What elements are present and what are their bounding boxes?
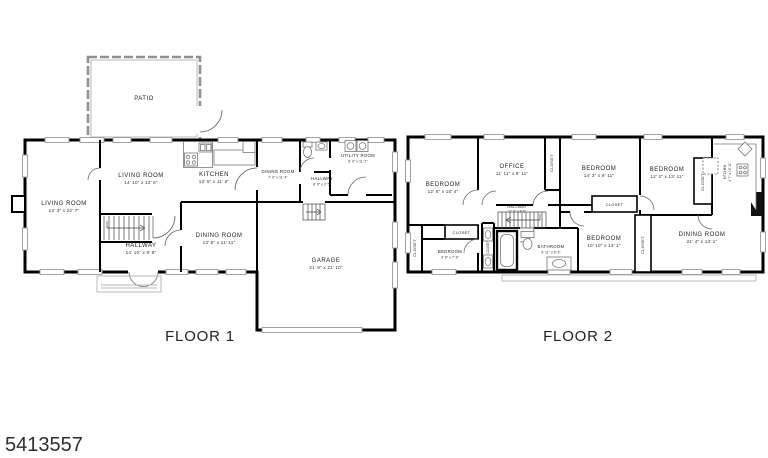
room-dims-office: 11' 11" x 9' 11" <box>496 171 529 176</box>
closet-label-mid: CLOSET <box>453 230 471 235</box>
room-label-hallway-a: HALLWAY <box>125 243 156 249</box>
room-label-garage: GARAGE <box>312 258 341 264</box>
front-door-gap <box>128 268 158 276</box>
vanity-sink-icon <box>547 257 571 270</box>
floor2-deck-line <box>502 275 756 281</box>
stove-icon <box>185 153 198 166</box>
room-dims-garage: 21' 9" x 21' 10" <box>309 265 343 270</box>
closet-label-top: CLOSET <box>549 154 554 172</box>
closet-label-left: CLOSET <box>412 239 417 257</box>
dishwasher-icon <box>703 158 718 174</box>
room-dims-living-room-b: 14' 10" x 13' 6" <box>124 180 158 185</box>
room-dims-bedroom-a: 12' 6" x 15' 4" <box>428 189 459 194</box>
room-dims-kitchen: 13' 5" x 11' 6" <box>199 179 230 184</box>
staircase-down-icon <box>498 212 546 228</box>
floor1-plan: PATIO LIVING ROOM 13' 3" x 22' 7" LIVING… <box>12 57 398 333</box>
bathtub-icon <box>497 231 517 270</box>
stove2-icon <box>737 164 748 176</box>
room-dims-bathroom2: 9' 11" x 6' 3" <box>541 251 561 255</box>
staircase-up-icon <box>104 216 149 240</box>
room-dims-utility-room: 8' 9" x 11' 2" <box>348 160 368 164</box>
room-label-bedroom-a: BEDROOM <box>426 182 461 188</box>
refrigerator-icon <box>243 142 255 153</box>
room-dims-dining-room-a: 13' 5" x 11' 11" <box>203 240 236 245</box>
room-label-living-room-a: LIVING ROOM <box>41 201 87 207</box>
room-label-bathroom2: BATHROOM <box>538 244 565 249</box>
room-label-living-room-b: LIVING ROOM <box>118 173 164 179</box>
room-label-hallway2: HALLWAY <box>507 205 527 209</box>
room-dims-bedroom-c: 12' 2" x 13' 11" <box>650 174 683 179</box>
room-dims-living-room-a: 13' 3" x 22' 7" <box>49 208 80 213</box>
closet-label-linen: CLOSET <box>486 240 490 253</box>
patio-door-arc <box>200 110 222 132</box>
room-dims-kitchen2: 4' 7" x 10' 11" <box>728 161 732 181</box>
patio-structure <box>88 57 222 140</box>
room-label-bedroom-b: BEDROOM <box>582 166 617 172</box>
room-dims-bedroom-d: 9' 6" x 7' 8" <box>441 256 459 260</box>
closet-label-bedroom-c: CLOSET <box>700 173 705 191</box>
patio-door-gap <box>196 106 203 134</box>
room-dims-dining-room2: 21' 4" x 13' 1" <box>687 239 718 244</box>
room-label-kitchen: KITCHEN <box>199 172 229 178</box>
chimney <box>12 196 25 212</box>
room-dims-bedroom-e: 10' 10" x 13' 1" <box>587 243 621 248</box>
room-label-bedroom-c: BEDROOM <box>650 167 685 173</box>
floor2-plan: BEDROOM 12' 6" x 15' 4" OFFICE 11' 11" x… <box>406 135 766 282</box>
room-dims-hallway2: 17' 6" x 8' 6" <box>508 210 527 214</box>
room-dims-bedroom-b: 14' 3" x 9' 11" <box>584 173 615 178</box>
toilet-icon <box>303 142 312 158</box>
floorplan-svg: PATIO LIVING ROOM 13' 3" x 22' 7" LIVING… <box>0 0 768 458</box>
floorplan-image: PATIO LIVING ROOM 13' 3" x 22' 7" LIVING… <box>0 0 768 458</box>
room-label-patio: PATIO <box>134 96 154 102</box>
room-dims-hallway-b: 8' 0" x 3' 5" <box>313 183 331 187</box>
toilet2-icon <box>521 232 534 250</box>
garage-door <box>262 328 362 333</box>
room-label-bedroom-d: BEDROOM <box>438 249 462 254</box>
room-label-dining-room-b: DINING ROOM <box>262 169 295 174</box>
room-dims-dining-room-b: 7' 9" x 11' 4" <box>268 176 288 180</box>
bath-sink-icon <box>316 142 327 150</box>
room-label-office: OFFICE <box>500 164 525 170</box>
room-label-bedroom-e: BEDROOM <box>587 236 622 242</box>
staircase-garage-icon <box>303 204 325 220</box>
room-label-hallway-b: HALLWAY <box>311 176 333 181</box>
room-label-kitchen2: KITCHEN <box>723 164 727 179</box>
room-label-dining-room2: DINING ROOM <box>679 232 726 238</box>
washer-dryer-icon <box>345 141 368 152</box>
sink-icon <box>199 143 212 152</box>
room-label-dining-room-a: DINING ROOM <box>196 233 243 239</box>
closet-label-center: CLOSET <box>606 202 624 207</box>
room-label-utility-room: UTILITY ROOM <box>341 153 375 158</box>
floor2-caption: FLOOR 2 <box>543 328 613 345</box>
room-dims-hallway-a: 14' 10" x 9' 9" <box>126 250 157 255</box>
listing-id: 5413557 <box>5 434 83 456</box>
floor1-caption: FLOOR 1 <box>165 328 235 345</box>
closet-label-bottom: CLOSET <box>640 236 645 254</box>
